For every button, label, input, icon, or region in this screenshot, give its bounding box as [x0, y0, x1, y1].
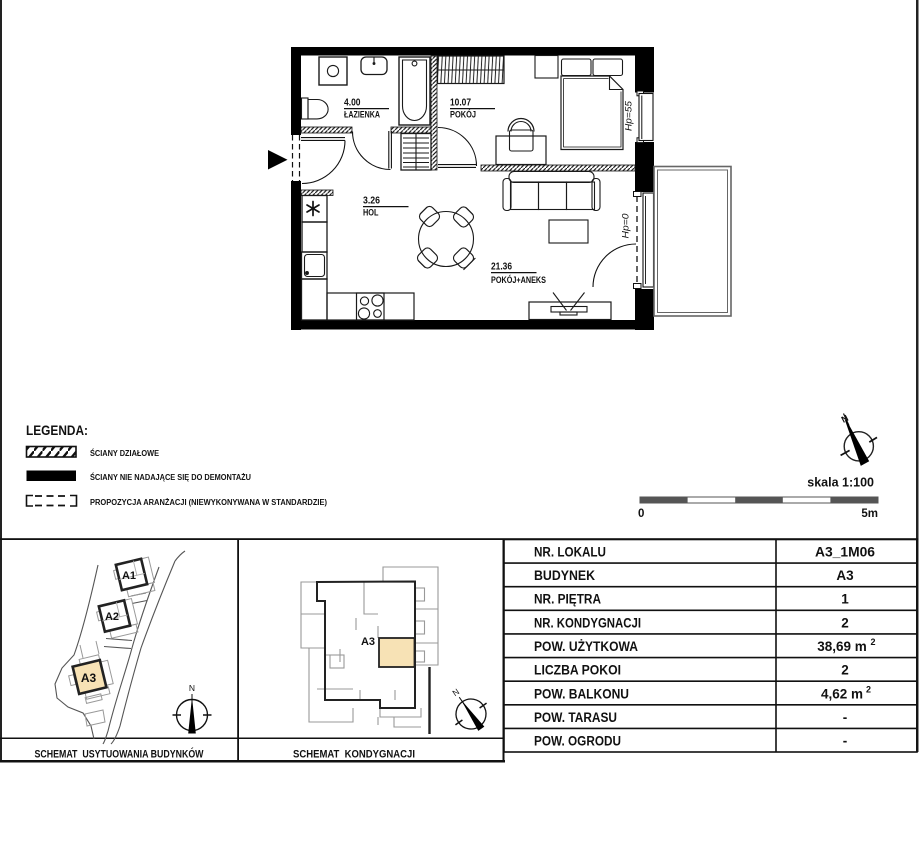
svg-text:ŚCIANY NIE NADAJĄCE SIĘ DO DEM: ŚCIANY NIE NADAJĄCE SIĘ DO DEMONTAŻU	[90, 473, 251, 482]
svg-text:2: 2	[841, 663, 849, 678]
svg-text:SCHEMAT KONDYGNACJI: SCHEMAT KONDYGNACJI	[293, 749, 415, 761]
svg-text:A1: A1	[122, 570, 136, 582]
svg-text:NR. KONDYGNACJI: NR. KONDYGNACJI	[534, 616, 641, 631]
svg-text:4.00: 4.00	[344, 98, 361, 109]
svg-text:2: 2	[841, 616, 849, 631]
svg-text:LEGENDA:: LEGENDA:	[26, 423, 88, 438]
svg-text:-: -	[843, 734, 848, 749]
svg-text:A3: A3	[81, 671, 97, 685]
svg-text:A3_1M06: A3_1M06	[815, 545, 875, 560]
svg-text:NR. LOKALU: NR. LOKALU	[534, 545, 606, 560]
svg-text:POW. BALKONU: POW. BALKONU	[534, 687, 629, 702]
svg-text:2: 2	[866, 685, 871, 695]
svg-text:0: 0	[638, 508, 644, 520]
svg-text:5m: 5m	[861, 508, 878, 520]
svg-text:1: 1	[841, 592, 849, 607]
svg-text:skala 1:100: skala 1:100	[807, 476, 874, 490]
svg-text:LICZBA POKOI: LICZBA POKOI	[534, 663, 621, 678]
svg-text:SCHEMAT USYTUOWANIA BUDYNKÓW: SCHEMAT USYTUOWANIA BUDYNKÓW	[35, 748, 204, 761]
svg-text:N: N	[189, 683, 195, 693]
svg-text:3.26: 3.26	[363, 196, 380, 207]
svg-text:2: 2	[871, 637, 876, 647]
svg-text:NR. PIĘTRA: NR. PIĘTRA	[534, 592, 601, 607]
svg-text:A3: A3	[361, 636, 375, 648]
svg-text:A3: A3	[836, 568, 854, 583]
svg-text:PROPOZYCJA ARANŻACJI (NIEWYKON: PROPOZYCJA ARANŻACJI (NIEWYKONYWANA W ST…	[90, 498, 327, 507]
svg-text:ŚCIANY DZIAŁOWE: ŚCIANY DZIAŁOWE	[90, 449, 160, 458]
svg-text:Hp=55: Hp=55	[624, 100, 635, 131]
svg-text:POKÓJ+ANEKS: POKÓJ+ANEKS	[491, 274, 546, 285]
svg-text:ŁAZIENKA: ŁAZIENKA	[344, 110, 380, 120]
svg-text:10.07: 10.07	[450, 98, 471, 109]
svg-text:BUDYNEK: BUDYNEK	[534, 568, 595, 583]
svg-text:POW. TARASU: POW. TARASU	[534, 710, 617, 725]
svg-text:POKÓJ: POKÓJ	[450, 109, 476, 120]
svg-text:21.36: 21.36	[491, 262, 512, 273]
svg-text:4,62 m: 4,62 m	[821, 687, 863, 702]
svg-text:38,69 m: 38,69 m	[817, 639, 867, 654]
svg-text:HOL: HOL	[363, 208, 379, 218]
svg-text:Hp=0: Hp=0	[621, 213, 632, 239]
svg-text:-: -	[843, 710, 848, 725]
svg-text:POW. UŻYTKOWA: POW. UŻYTKOWA	[534, 639, 638, 654]
svg-text:POW. OGRODU: POW. OGRODU	[534, 734, 621, 749]
svg-text:A2: A2	[105, 611, 119, 623]
